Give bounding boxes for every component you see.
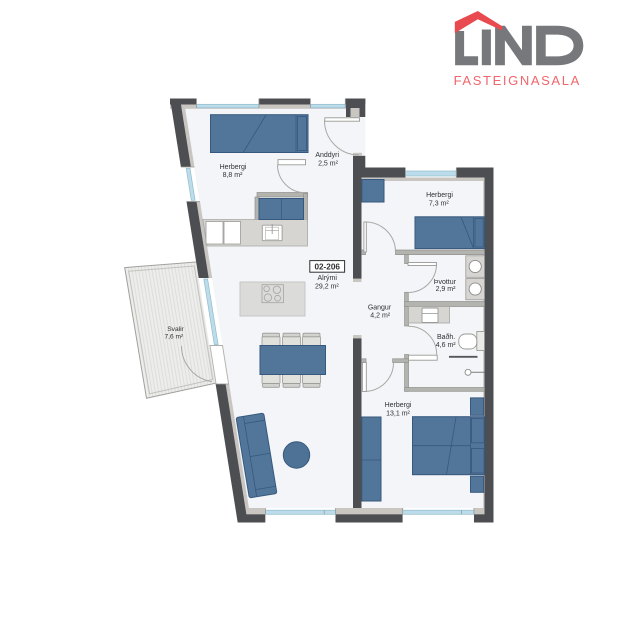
svg-text:Herbergi: Herbergi xyxy=(385,402,412,409)
svg-text:Herbergi: Herbergi xyxy=(220,164,247,171)
svg-text:4,6 m²: 4,6 m² xyxy=(436,342,457,349)
svg-text:13,1 m²: 13,1 m² xyxy=(386,411,410,418)
svg-text:Þvottur: Þvottur xyxy=(434,279,457,286)
svg-text:2,9 m²: 2,9 m² xyxy=(436,286,457,293)
svg-text:Gangur: Gangur xyxy=(368,305,392,312)
svg-text:29,2 m²: 29,2 m² xyxy=(315,284,339,291)
svg-text:8,8 m²: 8,8 m² xyxy=(223,172,244,179)
svg-text:Baðh.: Baðh. xyxy=(437,333,455,341)
svg-text:7,6 m²: 7,6 m² xyxy=(164,333,183,340)
svg-text:Alrými: Alrými xyxy=(317,275,337,282)
svg-text:Anddyri: Anddyri xyxy=(315,152,339,159)
svg-text:Svalir: Svalir xyxy=(167,326,184,333)
svg-text:Herbergi: Herbergi xyxy=(426,192,453,199)
svg-text:FASTEIGNASALA: FASTEIGNASALA xyxy=(454,73,581,88)
svg-text:2,5 m²: 2,5 m² xyxy=(318,161,339,168)
svg-text:7,3 m²: 7,3 m² xyxy=(429,200,450,207)
svg-text:4,2 m²: 4,2 m² xyxy=(370,313,391,320)
svg-text:02-206: 02-206 xyxy=(314,263,340,272)
